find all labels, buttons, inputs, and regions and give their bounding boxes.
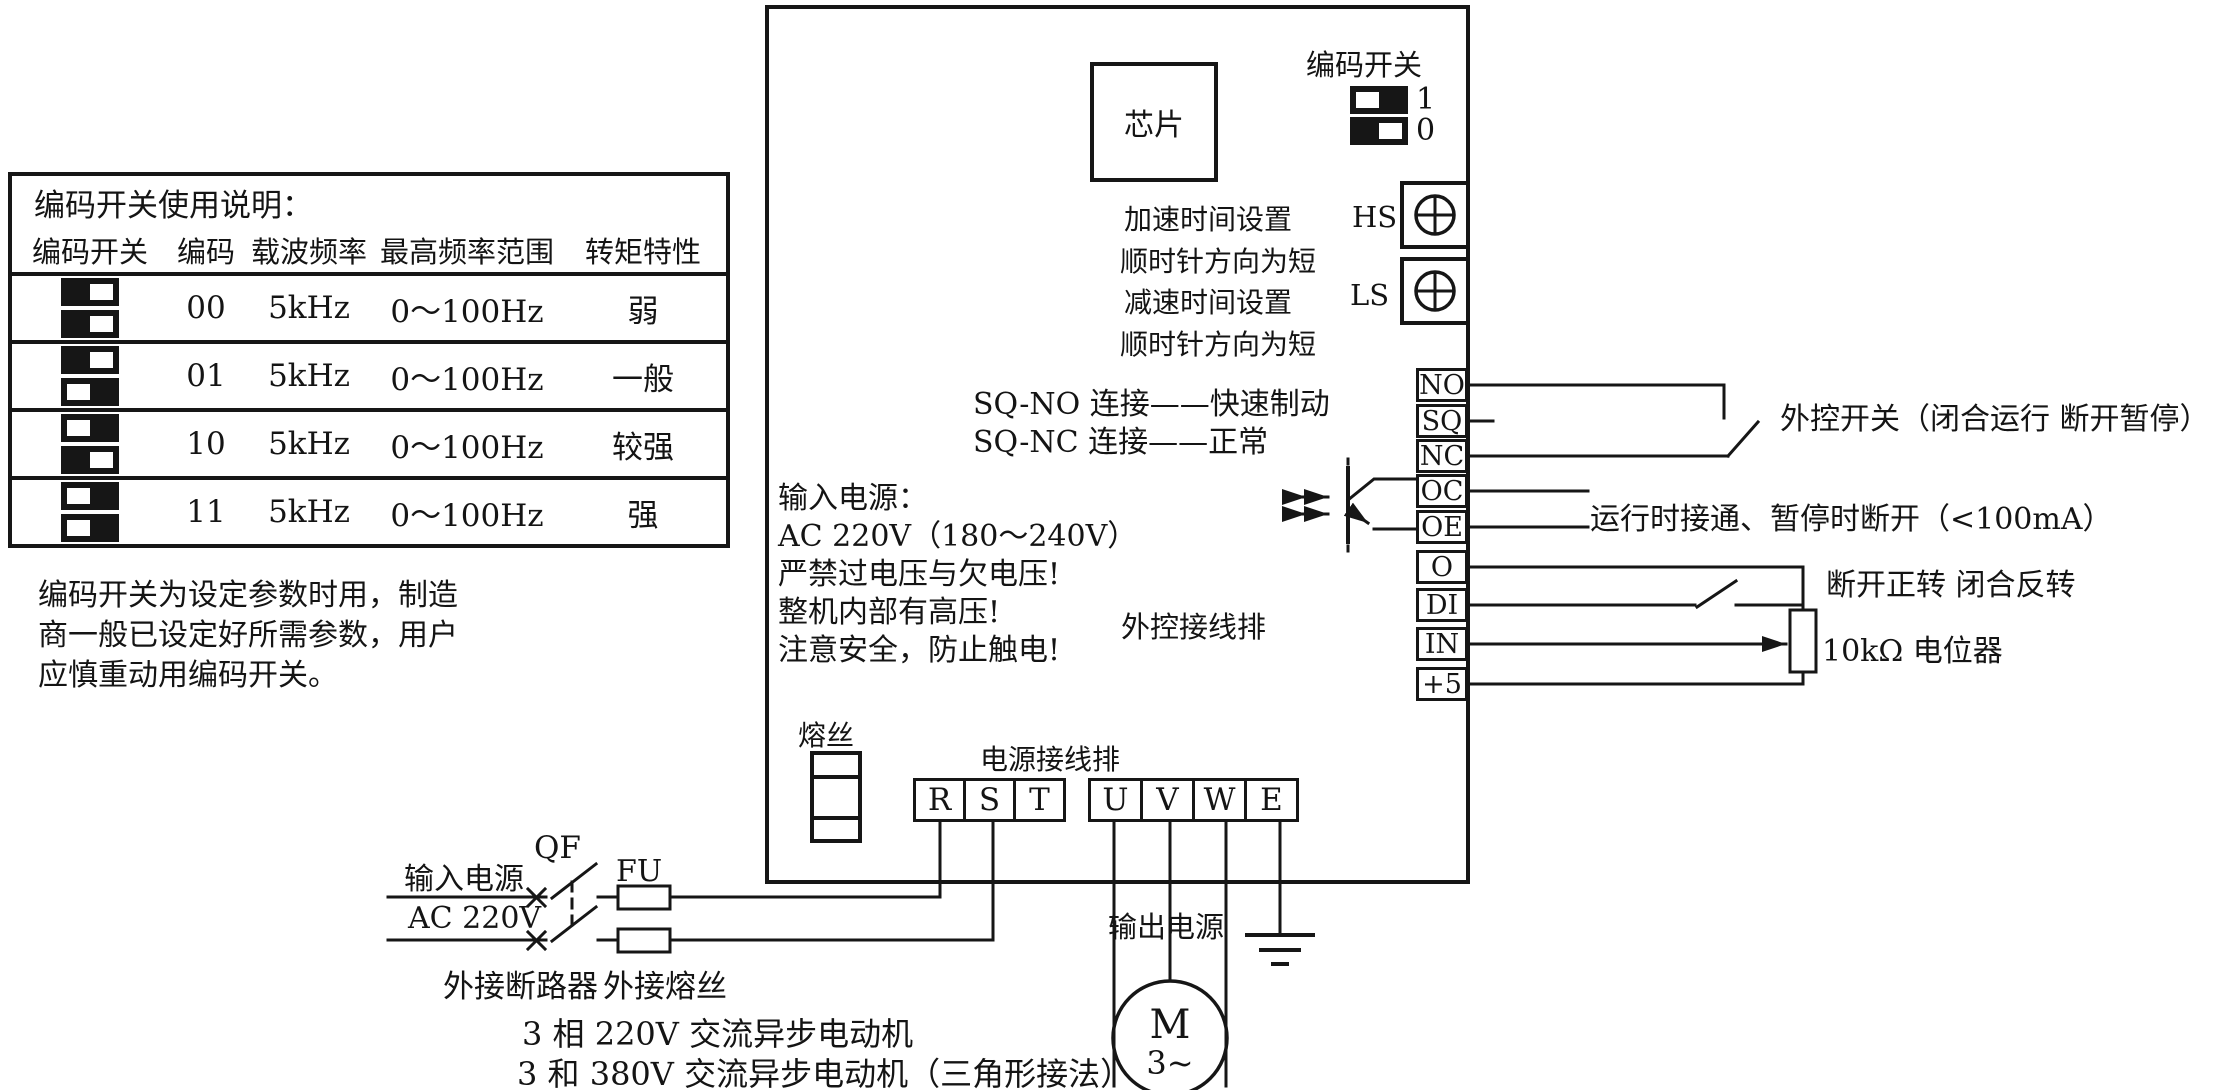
dip-legend-title: 编码开关: [1306, 42, 1422, 84]
cell-carrier: 5kHz: [244, 426, 374, 462]
col-header-switch: 编码开关: [12, 229, 168, 271]
table-row: 01 5kHz 0～100Hz 一般: [12, 340, 726, 408]
ext-fuse-1: [618, 886, 670, 909]
terminal-oc: OC: [1416, 474, 1468, 508]
terminal-di: DI: [1416, 588, 1468, 622]
sq-nc-note: SQ-NC 连接——正常: [973, 424, 1268, 461]
warning-line-1: 输入电源：: [778, 480, 928, 518]
motor-note-2: 3 和 380V 交流异步电动机（三角形接法）: [517, 1054, 1132, 1090]
col-header-torque: 转矩特性: [560, 229, 726, 271]
table-row: 00 5kHz 0～100Hz 弱: [12, 272, 726, 340]
breaker-ref-label: QF: [534, 830, 581, 866]
table-note-line-3: 应慎重动用编码开关。: [38, 656, 338, 696]
plus5-wire: [1490, 672, 1803, 684]
table-row: 10 5kHz 0～100Hz 较强: [12, 408, 726, 476]
ls-label: LS: [1350, 278, 1389, 312]
cell-carrier: 5kHz: [244, 358, 374, 394]
dip-switch-table: 编码开关使用说明： 编码开关 编码 载波频率 最高频率范围 转矩特性 00 5k…: [8, 172, 730, 548]
cell-range: 0～100Hz: [374, 286, 560, 331]
terminal-plus5: +5: [1416, 667, 1468, 701]
chip-label: 芯片: [1124, 100, 1184, 144]
dip-icon-10: [61, 414, 119, 474]
ground-icon: [1247, 935, 1313, 964]
potentiometer-symbol: [1790, 610, 1816, 672]
ext-switch-note: 外控开关（闭合运行 断开暂停）: [1780, 394, 2210, 438]
cell-torque: 一般: [560, 354, 726, 399]
cell-torque: 弱: [560, 286, 726, 331]
accel-line-2: 顺时针方向为短: [1120, 240, 1316, 280]
table-note-line-1: 编码开关为设定参数时用，制造: [38, 576, 458, 616]
col-header-range: 最高频率范围: [374, 229, 560, 271]
warning-line-4: 整机内部有高压!: [778, 594, 1000, 632]
col-header-code: 编码: [168, 229, 244, 271]
di-switch-symbol: [1490, 581, 1803, 607]
cell-torque: 强: [560, 490, 726, 535]
terminal-oe: OE: [1416, 510, 1468, 544]
terminal-t: T: [1013, 778, 1066, 822]
ext-fuse-label: 外接熔丝: [603, 961, 727, 1006]
control-strip-label: 外控接线排: [1121, 604, 1266, 646]
cell-carrier: 5kHz: [244, 290, 374, 326]
input-power-label: 输入电源: [404, 854, 524, 898]
oc-oe-wires: [1490, 491, 1588, 527]
terminal-in: IN: [1416, 627, 1468, 661]
cell-code: 10: [168, 426, 244, 462]
warning-line-5: 注意安全，防止触电!: [778, 632, 1060, 670]
cell-range: 0～100Hz: [374, 490, 560, 535]
table-row: 11 5kHz 0～100Hz 强: [12, 476, 726, 544]
terminal-o: O: [1416, 550, 1468, 584]
power-strip-label: 电源接线排: [980, 738, 1120, 778]
sq-no-note: SQ-NO 连接——快速制动: [973, 386, 1330, 423]
terminal-nc: NC: [1416, 439, 1468, 473]
warning-line-2: AC 220V（180～240V）: [778, 518, 1137, 556]
ext-fuse-2: [618, 929, 670, 952]
dip-switch-off-icon: [1350, 117, 1408, 145]
decel-line-2: 顺时针方向为短: [1120, 323, 1316, 363]
dip-icon-11: [61, 482, 119, 542]
terminal-v: V: [1140, 778, 1195, 822]
cell-range: 0～100Hz: [374, 354, 560, 399]
terminal-sq: SQ: [1416, 404, 1468, 438]
terminal-r: R: [913, 778, 966, 822]
input-terminal-strip: R S T: [913, 778, 1066, 822]
terminal-s: S: [963, 778, 1016, 822]
col-header-carrier: 载波频率: [244, 229, 374, 271]
warning-line-3: 严禁过电压与欠电压!: [778, 556, 1060, 594]
di-note: 断开正转 闭合反转: [1826, 560, 2076, 604]
dip-legend-on-label: 1: [1416, 82, 1435, 117]
output-power-label: 输出电源: [1108, 904, 1224, 946]
dip-icon-00: [61, 278, 119, 338]
cell-range: 0～100Hz: [374, 422, 560, 467]
cell-carrier: 5kHz: [244, 494, 374, 530]
terminal-u: U: [1088, 778, 1143, 822]
fuse-ref-label: FU: [616, 854, 662, 889]
breaker-label: 外接断路器: [443, 961, 598, 1006]
input-voltage-label: AC 220V: [408, 901, 541, 936]
terminal-w: W: [1192, 778, 1247, 822]
hs-label: HS: [1352, 200, 1397, 234]
wiring-diagram: 芯片 编码开关 1 0 加速时间设置 顺时针方向为短 减速时间设置 顺时针方向为…: [0, 0, 2214, 1090]
cell-code: 01: [168, 358, 244, 394]
table-header-row: 编码开关 编码 载波频率 最高频率范围 转矩特性: [12, 228, 726, 272]
potentiometer-label: 10kΩ 电位器: [1822, 626, 2003, 670]
output-terminal-strip: U V W E: [1088, 778, 1299, 822]
oc-oe-note: 运行时接通、暂停时断开（<100mA）: [1590, 494, 2113, 538]
terminal-no: NO: [1416, 368, 1468, 402]
dip-legend-off-label: 0: [1416, 113, 1435, 148]
table-note-line-2: 商一般已设定好所需参数，用户: [38, 616, 458, 656]
terminal-e: E: [1244, 778, 1299, 822]
motor-note-1: 3 相 220V 交流异步电动机: [522, 1014, 913, 1054]
no-wire: [1490, 385, 1724, 418]
accel-line-1: 加速时间设置: [1124, 198, 1292, 238]
ext-switch-symbol: [1490, 422, 1758, 456]
dip-icon-01: [61, 346, 119, 406]
decel-line-1: 减速时间设置: [1124, 281, 1292, 321]
chip-box: 芯片: [1090, 62, 1218, 182]
motor-letter: M: [1112, 1004, 1228, 1046]
cell-code: 00: [168, 290, 244, 326]
dip-switch-on-icon: [1350, 86, 1408, 114]
internal-fuse-label: 熔丝: [798, 714, 854, 754]
cell-code: 11: [168, 494, 244, 530]
table-title: 编码开关使用说明：: [12, 176, 726, 228]
cell-torque: 较强: [560, 422, 726, 467]
